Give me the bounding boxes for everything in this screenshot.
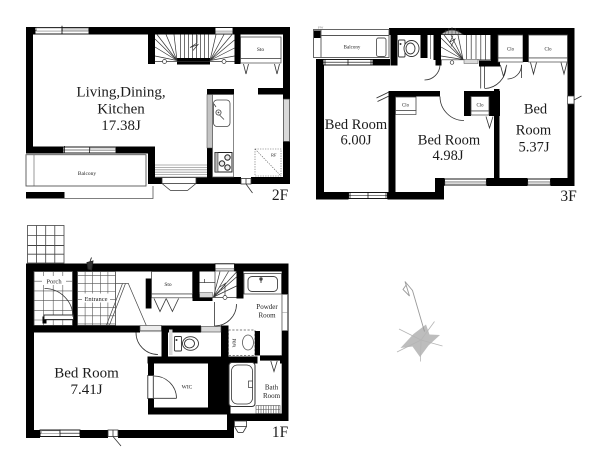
svg-text:Clo: Clo xyxy=(507,48,515,53)
svg-text:3F: 3F xyxy=(560,188,577,205)
svg-text:Balcony: Balcony xyxy=(344,46,361,51)
svg-text:4.98J: 4.98J xyxy=(432,148,463,164)
svg-text:Clo: Clo xyxy=(477,104,485,109)
svg-text:17.38J: 17.38J xyxy=(101,118,141,134)
svg-text:Bed Room: Bed Room xyxy=(325,117,388,133)
svg-text:RF: RF xyxy=(271,153,277,158)
svg-text:Kitchen: Kitchen xyxy=(97,102,145,118)
svg-text:6.00J: 6.00J xyxy=(340,133,371,149)
svg-text:2F: 2F xyxy=(272,187,289,204)
svg-text:Clo: Clo xyxy=(545,48,553,53)
svg-text:Bed Room: Bed Room xyxy=(54,366,119,382)
svg-text:Sto: Sto xyxy=(164,282,172,288)
svg-text:FW: FW xyxy=(318,26,324,30)
svg-text:WM: WM xyxy=(233,338,238,348)
svg-text:WIC: WIC xyxy=(182,385,193,391)
svg-text:Room: Room xyxy=(263,392,281,400)
svg-text:1F: 1F xyxy=(272,424,289,441)
svg-text:Room: Room xyxy=(258,312,276,320)
svg-text:Clo: Clo xyxy=(402,104,410,109)
svg-text:Entrance: Entrance xyxy=(84,296,107,303)
svg-text:Powder: Powder xyxy=(256,303,278,311)
svg-text:Living,Dining,: Living,Dining, xyxy=(76,85,165,101)
svg-text:Bed: Bed xyxy=(524,102,548,118)
svg-text:Bed Room: Bed Room xyxy=(418,133,481,149)
svg-text:Room: Room xyxy=(516,123,552,139)
svg-text:7.41J: 7.41J xyxy=(70,382,102,398)
svg-text:5.37J: 5.37J xyxy=(518,140,549,156)
svg-text:Sto: Sto xyxy=(257,47,265,53)
svg-text:Porch: Porch xyxy=(46,279,62,286)
svg-text:Balcony: Balcony xyxy=(78,171,97,177)
svg-text:Bath: Bath xyxy=(265,384,279,392)
